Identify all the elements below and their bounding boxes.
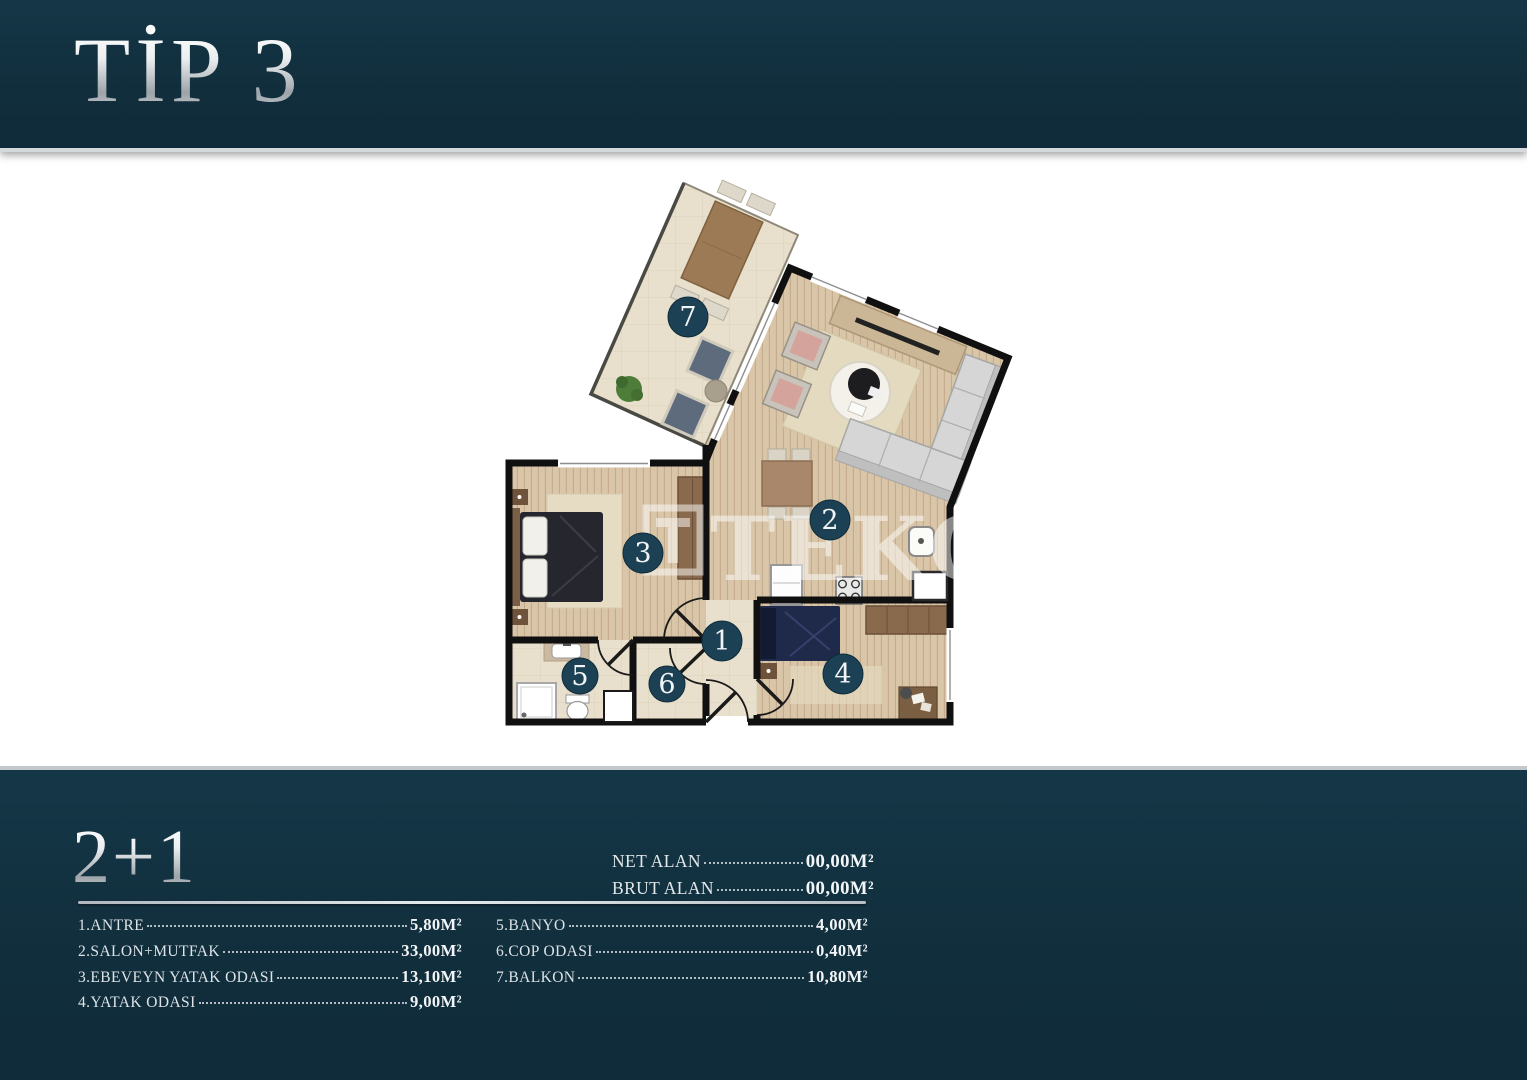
hallway-floor [706,600,757,722]
room-value: 10,80M² [807,966,868,987]
gross-area-value: 00,00M² [806,877,874,901]
dotted-leader [223,951,398,953]
room-value: 4,00M² [816,914,868,935]
room-value: 33,00M² [401,940,462,961]
svg-text:7: 7 [679,302,696,333]
page-title: TİP 3 [74,20,303,121]
room-list-col1: 1.ANTRE 5,80M² 2.SALON+MUTFAK 33,00M² 3.… [78,914,462,1017]
area-summary: NET ALAN 00,00M² BRUT ALAN 00,00M² [612,850,874,904]
dotted-leader [147,925,407,927]
room-label: 7.BALKON [496,968,575,988]
room-label: 5.BANYO [496,916,566,936]
dotted-leader [578,977,804,979]
net-area-row: NET ALAN 00,00M² [612,850,874,874]
dotted-leader [596,951,813,953]
watermark-text: TEKCE [710,497,1017,601]
room-value: 13,10M² [401,966,462,987]
svg-text:6: 6 [658,669,675,700]
svg-text:5: 5 [571,661,588,692]
badge-7: 7 [668,297,708,337]
apartment-floorplan: TEKCE 1 2 3 4 5 6 7 [503,176,1017,744]
gross-area-label: BRUT ALAN [612,877,714,899]
dotted-leader [704,862,803,864]
svg-text:2: 2 [821,505,838,536]
svg-text:1: 1 [713,626,730,657]
gross-area-row: BRUT ALAN 00,00M² [612,877,874,901]
badge-2: 2 [810,500,850,540]
room-row: 2.SALON+MUTFAK 33,00M² [78,940,462,962]
brochure-page: TİP 3 [0,0,1527,1080]
room-row: 3.EBEVEYN YATAK ODASI 13,10M² [78,966,462,988]
room-row: 5.BANYO 4,00M² [496,914,868,936]
room-label: 1.ANTRE [78,916,144,936]
unit-type-label: 2+1 [72,816,197,900]
divider-line [78,901,866,904]
room-label: 4.YATAK ODASI [78,993,196,1013]
badge-4: 4 [823,654,863,694]
shaft [604,691,633,722]
svg-text:3: 3 [634,538,651,569]
dotted-leader [199,1002,407,1004]
room-row: 6.COP ODASI 0,40M² [496,940,868,962]
room-value: 9,00M² [410,991,462,1012]
dotted-leader [277,977,398,979]
badge-1: 1 [702,621,742,661]
net-area-label: NET ALAN [612,850,701,872]
room-label: 3.EBEVEYN YATAK ODASI [78,968,274,988]
room-row: 1.ANTRE 5,80M² [78,914,462,936]
footer-band: 2+1 NET ALAN 00,00M² BRUT ALAN 00,00M² 1… [0,766,1527,1080]
badge-6: 6 [649,666,685,702]
room-label: 2.SALON+MUTFAK [78,942,220,962]
badge-3: 3 [623,533,663,573]
room-value: 5,80M² [410,914,462,935]
room-row: 4.YATAK ODASI 9,00M² [78,991,462,1013]
svg-text:4: 4 [834,659,851,690]
room-label: 6.COP ODASI [496,942,593,962]
room-value: 0,40M² [816,940,868,961]
room-list-col2: 5.BANYO 4,00M² 6.COP ODASI 0,40M² 7.BALK… [496,914,868,991]
net-area-value: 00,00M² [806,850,874,874]
header-band: TİP 3 [0,0,1527,152]
dotted-leader [717,889,803,891]
dotted-leader [569,925,813,927]
badge-5: 5 [562,658,598,694]
room-row: 7.BALKON 10,80M² [496,966,868,988]
toilet [567,702,588,721]
